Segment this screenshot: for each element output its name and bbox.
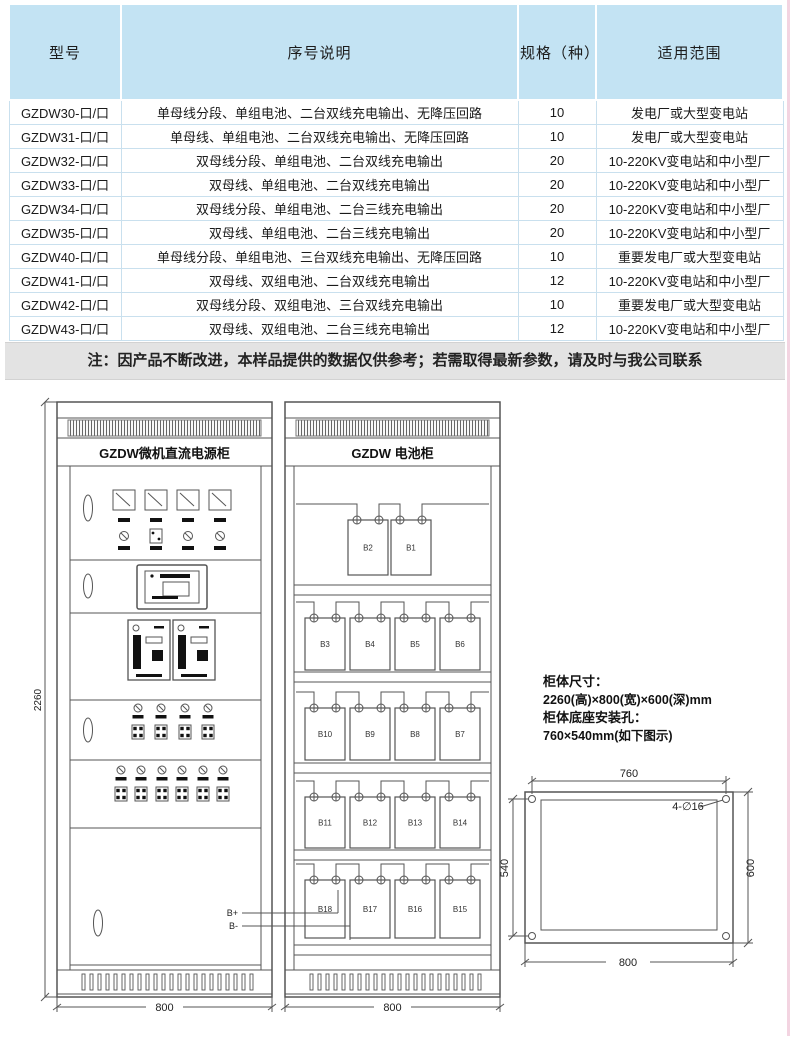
battery: B6 bbox=[440, 614, 480, 670]
table-cell: 单母线分段、单组电池、二台双线充电输出、无降压回路 bbox=[121, 100, 518, 125]
table-cell: 双母线分段、单组电池、二台双线充电输出 bbox=[121, 149, 518, 173]
spec-table: 型号序号说明规格（种）适用范围 GZDW30-口/口单母线分段、单组电池、二台双… bbox=[8, 3, 784, 341]
door-handle[interactable] bbox=[94, 910, 103, 936]
battery-shelves: B2B1B3B4B5B6B10B9B8B7B11B12B13B14B18B17B… bbox=[294, 504, 491, 955]
battery-label: B16 bbox=[408, 905, 423, 914]
dc-cabinet-title: GZDW微机直流电源柜 bbox=[99, 446, 230, 461]
battery: B17 bbox=[350, 876, 390, 938]
table-row: GZDW40-口/口单母线分段、单组电池、三台双线充电输出、无降压回路10重要发… bbox=[9, 245, 783, 269]
table-cell: 10 bbox=[518, 293, 596, 317]
battery: B4 bbox=[350, 614, 390, 670]
table-cell: 双母线分段、双组电池、三台双线充电输出 bbox=[121, 293, 518, 317]
battery-label: B3 bbox=[320, 640, 330, 649]
door-handle[interactable] bbox=[84, 718, 93, 742]
battery-label: B15 bbox=[453, 905, 468, 914]
table-cell: 单母线、单组电池、二台双线充电输出、无降压回路 bbox=[121, 125, 518, 149]
battery: B2 bbox=[348, 516, 388, 575]
base-vent-slats-icon bbox=[82, 974, 481, 990]
table-cell: 20 bbox=[518, 173, 596, 197]
battery-label: B12 bbox=[363, 819, 378, 828]
mount-dim-right: 600 bbox=[745, 859, 757, 877]
table-cell: 20 bbox=[518, 221, 596, 245]
table-row: GZDW32-口/口双母线分段、单组电池、二台双线充电输出2010-220KV变… bbox=[9, 149, 783, 173]
table-header-cell: 适用范围 bbox=[596, 4, 783, 100]
battery-wiring bbox=[296, 504, 489, 516]
indicator-lamp-icon[interactable] bbox=[214, 532, 226, 551]
technical-drawing: GZDW微机直流电源柜 GZDW 电池柜 B2B1B3B4B5B6B10B9B8… bbox=[0, 378, 790, 1036]
table-cell: 20 bbox=[518, 149, 596, 173]
table-cell: GZDW32-口/口 bbox=[9, 149, 121, 173]
table-cell: 双母线、单组电池、二台三线充电输出 bbox=[121, 221, 518, 245]
table-cell: 双母线、单组电池、二台双线充电输出 bbox=[121, 173, 518, 197]
table-cell: 双母线、双组电池、二台三线充电输出 bbox=[121, 317, 518, 341]
feeder-switch-icon[interactable] bbox=[135, 766, 147, 801]
battery: B5 bbox=[395, 614, 435, 670]
table-cell: GZDW31-口/口 bbox=[9, 125, 121, 149]
battery: B15 bbox=[440, 876, 480, 938]
battery-label: B8 bbox=[410, 730, 420, 739]
feeder-switch-icon[interactable] bbox=[202, 704, 214, 739]
cabinet-drawing-svg: GZDW微机直流电源柜 GZDW 电池柜 B2B1B3B4B5B6B10B9B8… bbox=[0, 378, 790, 1036]
battery: B7 bbox=[440, 704, 480, 760]
monitor-display-icon bbox=[137, 565, 207, 609]
mount-hole-icon bbox=[723, 933, 730, 940]
analog-meter-icon bbox=[177, 490, 199, 522]
battery: B18 bbox=[305, 876, 345, 938]
battery-label: B17 bbox=[363, 905, 378, 914]
battery-wiring bbox=[296, 602, 489, 614]
table-cell: GZDW35-口/口 bbox=[9, 221, 121, 245]
battery-label: B10 bbox=[318, 730, 333, 739]
table-cell: 10 bbox=[518, 245, 596, 269]
indicator-lamp-icon[interactable] bbox=[182, 532, 194, 551]
table-cell: 发电厂或大型变电站 bbox=[596, 100, 783, 125]
table-row: GZDW42-口/口双母线分段、双组电池、三台双线充电输出10重要发电厂或大型变… bbox=[9, 293, 783, 317]
battery: B10 bbox=[305, 704, 345, 760]
table-row: GZDW33-口/口双母线、单组电池、二台双线充电输出2010-220KV变电站… bbox=[9, 173, 783, 197]
mount-dim-bottom: 800 bbox=[619, 957, 637, 969]
switch-icon[interactable] bbox=[150, 529, 162, 550]
table-cell: 10 bbox=[518, 125, 596, 149]
mount-hole-icon bbox=[529, 796, 536, 803]
size-value: 2260(高)×800(宽)×600(深)mm bbox=[543, 692, 712, 707]
table-header-cell: 序号说明 bbox=[121, 4, 518, 100]
battery-label: B13 bbox=[408, 819, 423, 828]
mount-dim-top: 760 bbox=[620, 768, 638, 780]
table-header-row: 型号序号说明规格（种）适用范围 bbox=[9, 4, 783, 100]
charger-module-icon bbox=[173, 620, 215, 680]
table-cell: 12 bbox=[518, 269, 596, 293]
feeder-switch-icon[interactable] bbox=[176, 766, 188, 801]
battery-label: B11 bbox=[318, 819, 332, 828]
table-header-cell: 规格（种） bbox=[518, 4, 596, 100]
cabinet-spec-text: 柜体尺寸： 2260(高)×800(宽)×600(深)mm 柜体底座安装孔： 7… bbox=[542, 674, 712, 743]
table-row: GZDW31-口/口单母线、单组电池、二台双线充电输出、无降压回路10发电厂或大… bbox=[9, 125, 783, 149]
dc-cabinet-panels bbox=[84, 490, 232, 936]
battery: B1 bbox=[391, 516, 431, 575]
table-cell: GZDW30-口/口 bbox=[9, 100, 121, 125]
battery-wiring bbox=[296, 781, 489, 793]
size-label: 柜体尺寸： bbox=[542, 674, 608, 689]
table-cell: 发电厂或大型变电站 bbox=[596, 125, 783, 149]
b-minus-label: B- bbox=[229, 921, 238, 931]
battery-label: B7 bbox=[455, 730, 465, 739]
table-row: GZDW43-口/口双母线、双组电池、二台三线充电输出1210-220KV变电站… bbox=[9, 317, 783, 341]
analog-meter-icon bbox=[209, 490, 231, 522]
battery: B8 bbox=[395, 704, 435, 760]
feeder-switch-icon[interactable] bbox=[179, 704, 191, 739]
dc-cabinet-width-label: 800 bbox=[155, 1002, 173, 1014]
mount-hole-icon bbox=[723, 796, 730, 803]
table-body: GZDW30-口/口单母线分段、单组电池、二台双线充电输出、无降压回路10发电厂… bbox=[9, 100, 783, 341]
charger-module-icon bbox=[128, 620, 170, 680]
battery-terminal-links bbox=[242, 890, 350, 940]
table-cell: 双母线、双组电池、二台双线充电输出 bbox=[121, 269, 518, 293]
battery: B14 bbox=[440, 793, 480, 848]
feeder-switch-icon[interactable] bbox=[132, 704, 144, 739]
holes-label: 柜体底座安装孔： bbox=[542, 710, 647, 725]
dc-cabinet-outline bbox=[57, 402, 272, 997]
table-cell: 20 bbox=[518, 197, 596, 221]
battery-wiring bbox=[296, 864, 489, 876]
feeder-switch-icon[interactable] bbox=[115, 766, 127, 801]
mounting-hole-diagram bbox=[508, 776, 753, 967]
battery-label: B2 bbox=[363, 544, 373, 553]
battery-label: B5 bbox=[410, 640, 420, 649]
holes-value: 760×540mm(如下图示) bbox=[543, 728, 673, 743]
battery-cabinet-title: GZDW 电池柜 bbox=[351, 446, 433, 461]
battery-label: B4 bbox=[365, 640, 375, 649]
mount-dim-left: 540 bbox=[499, 859, 511, 877]
feeder-switch-icon[interactable] bbox=[217, 766, 229, 801]
b-plus-label: B+ bbox=[227, 908, 238, 918]
battery: B9 bbox=[350, 704, 390, 760]
table-header-cell: 型号 bbox=[9, 4, 121, 100]
battery-wiring bbox=[296, 692, 489, 704]
table-row: GZDW41-口/口双母线、双组电池、二台双线充电输出1210-220KV变电站… bbox=[9, 269, 783, 293]
table-cell: GZDW42-口/口 bbox=[9, 293, 121, 317]
table-row: GZDW35-口/口双母线、单组电池、二台三线充电输出2010-220KV变电站… bbox=[9, 221, 783, 245]
battery: B12 bbox=[350, 793, 390, 848]
table-cell: 10-220KV变电站和中小型厂 bbox=[596, 221, 783, 245]
battery-label: B6 bbox=[455, 640, 465, 649]
battery: B11 bbox=[305, 793, 345, 848]
table-cell: 12 bbox=[518, 317, 596, 341]
mount-hole-icon bbox=[529, 933, 536, 940]
vent-grille-icon bbox=[296, 420, 489, 436]
analog-meter-icon bbox=[145, 490, 167, 522]
table-cell: 10-220KV变电站和中小型厂 bbox=[596, 317, 783, 341]
table-cell: 10 bbox=[518, 100, 596, 125]
table-cell: GZDW34-口/口 bbox=[9, 197, 121, 221]
battery-label: B14 bbox=[453, 819, 468, 828]
table-cell: 10-220KV变电站和中小型厂 bbox=[596, 149, 783, 173]
battery: B13 bbox=[395, 793, 435, 848]
table-row: GZDW30-口/口单母线分段、单组电池、二台双线充电输出、无降压回路10发电厂… bbox=[9, 100, 783, 125]
table-row: GZDW34-口/口双母线分段、单组电池、二台三线充电输出2010-220KV变… bbox=[9, 197, 783, 221]
table-cell: 10-220KV变电站和中小型厂 bbox=[596, 197, 783, 221]
battery: B3 bbox=[305, 614, 345, 670]
table-cell: 10-220KV变电站和中小型厂 bbox=[596, 269, 783, 293]
feeder-switch-icon[interactable] bbox=[155, 704, 167, 739]
mount-holes-note: 4-∅16 bbox=[672, 801, 704, 813]
table-cell: 单母线分段、单组电池、三台双线充电输出、无降压回路 bbox=[121, 245, 518, 269]
cabinet-height-label: 2260 bbox=[33, 688, 44, 711]
table-cell: GZDW41-口/口 bbox=[9, 269, 121, 293]
note-bar: 注：因产品不断改进，本样品提供的数据仅供参考；若需取得最新参数，请及时与我公司联… bbox=[5, 342, 785, 380]
table-cell: 10-220KV变电站和中小型厂 bbox=[596, 173, 783, 197]
table-cell: 重要发电厂或大型变电站 bbox=[596, 245, 783, 269]
feeder-switch-icon[interactable] bbox=[197, 766, 209, 801]
table-cell: 双母线分段、单组电池、二台三线充电输出 bbox=[121, 197, 518, 221]
analog-meter-icon bbox=[113, 490, 135, 522]
table-cell: GZDW33-口/口 bbox=[9, 173, 121, 197]
door-handle[interactable] bbox=[84, 495, 93, 521]
battery-label: B9 bbox=[365, 730, 375, 739]
vent-grille-icon bbox=[68, 420, 261, 436]
feeder-switch-icon[interactable] bbox=[156, 766, 168, 801]
table-cell: GZDW40-口/口 bbox=[9, 245, 121, 269]
door-handle[interactable] bbox=[84, 574, 93, 598]
battery-label: B1 bbox=[406, 544, 416, 553]
table-cell: GZDW43-口/口 bbox=[9, 317, 121, 341]
battery: B16 bbox=[395, 876, 435, 938]
battery-cabinet-width-label: 800 bbox=[383, 1002, 401, 1014]
indicator-lamp-icon[interactable] bbox=[118, 532, 130, 551]
table-cell: 重要发电厂或大型变电站 bbox=[596, 293, 783, 317]
